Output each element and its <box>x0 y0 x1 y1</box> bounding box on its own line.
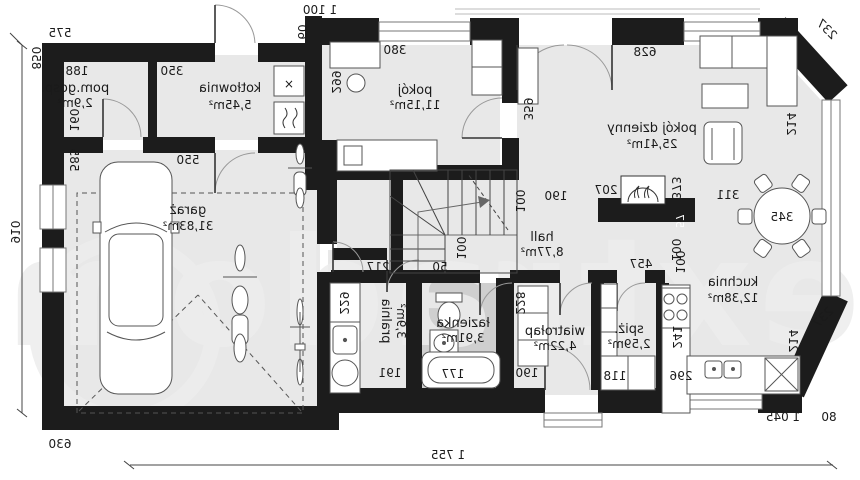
dim-wardrobe: 228 <box>513 292 527 315</box>
dim-tub: 177 <box>442 367 465 381</box>
svg-text:11,15m²: 11,15m² <box>389 98 440 112</box>
dim-total-height: 910 <box>8 221 22 244</box>
laundry-sink-icon <box>333 326 357 354</box>
porch-steps <box>544 413 602 427</box>
dim-living-w: 628 <box>634 45 657 59</box>
dim-bay-side-bottom: 214 <box>786 330 800 353</box>
floor-plan-drawing: extradom <box>0 0 860 480</box>
label-wiatrolap: wiatrołap 4,22m² <box>525 324 585 353</box>
kitchen-window <box>685 392 762 409</box>
svg-text:pokój dzienny: pokój dzienny <box>607 121 697 136</box>
dim-kitchen-w: 296 <box>670 369 693 383</box>
svg-text:wiatrołap: wiatrołap <box>525 324 585 339</box>
svg-text:2,59m²: 2,59m² <box>607 337 650 351</box>
dim-pomgosp-w: 188 <box>66 64 89 78</box>
dim-garage-width: 630 <box>49 437 72 451</box>
terrace-edge <box>455 9 760 14</box>
dim-left-top: 575 <box>49 26 72 40</box>
fridge-icon <box>765 358 798 391</box>
boiler-x-symbol: × <box>284 77 294 91</box>
dim-fireplace-d: 373 <box>669 177 683 200</box>
washing-machine-icon <box>332 360 358 386</box>
svg-text:pom.gosp.: pom.gosp. <box>41 81 109 96</box>
dim-pralnia-floor: 191 <box>379 366 402 380</box>
dim-table: 345 <box>771 210 794 224</box>
svg-text:spiż.: spiż. <box>614 322 644 337</box>
dim-spiz-w: 118 <box>604 369 627 383</box>
dim-pokoj-w: 380 <box>384 43 407 57</box>
dim-kitchen-off: 100 <box>673 251 687 274</box>
svg-text:łazienka: łazienka <box>436 316 490 331</box>
dim-kotlownia-w: 350 <box>161 64 184 78</box>
dim-bay-top: 237 <box>814 16 840 42</box>
svg-text:kotłownia: kotłownia <box>199 81 261 96</box>
dim-fireplace-wall: 57 <box>673 214 686 228</box>
dim-fireplace-w: 207 <box>595 183 618 197</box>
svg-text:hall: hall <box>530 230 553 245</box>
dim-stairs-d: 100 <box>513 190 527 213</box>
bed-icon <box>337 140 437 171</box>
dim-right-width: 1 045 <box>766 410 800 424</box>
dim-pokoj-h: 299 <box>329 71 343 94</box>
svg-text:garaż: garaż <box>170 203 207 218</box>
dim-garaz-h: 585 <box>67 149 81 172</box>
floor-plan-page: extradom <box>0 0 860 480</box>
dim-right-edge: 80 <box>821 410 836 424</box>
dim-annex-offset: 60 <box>295 24 309 39</box>
dim-garaz-w: 550 <box>177 153 200 167</box>
dim-living-h: 359 <box>521 98 535 121</box>
dim-kitchen-counter: 241 <box>670 326 684 349</box>
coffee-table-icon <box>702 84 748 108</box>
dim-pralnia-counter: 229 <box>337 292 351 315</box>
dim-table-clear: 311 <box>717 188 740 202</box>
bedroom-window <box>379 22 470 41</box>
svg-text:3,9m²: 3,9m² <box>394 303 408 339</box>
chair-icon <box>347 74 365 92</box>
mirrored-plan-wrapper: extradom <box>0 0 860 480</box>
svg-text:12,38m²: 12,38m² <box>707 291 758 305</box>
desk-icon <box>330 42 380 68</box>
dim-stairs-w: 190 <box>545 189 568 203</box>
dim-pralnia-top: 217 <box>367 260 390 274</box>
svg-text:25,41m²: 25,41m² <box>626 137 677 151</box>
dim-bay-side-top: 214 <box>784 113 798 136</box>
wardrobe-icon <box>472 40 502 95</box>
svg-text:31,83m²: 31,83m² <box>162 219 213 233</box>
dim-step: 50 <box>432 260 447 274</box>
dim-kitchen-top: 457 <box>630 257 653 271</box>
svg-text:pokój: pokój <box>398 83 433 98</box>
dim-landing: 100 <box>454 237 468 260</box>
heater-icon <box>274 102 304 134</box>
dim-top-width: 1 100 <box>303 3 337 17</box>
boiler-room-ext-door-arc <box>215 5 255 43</box>
svg-text:8,77m²: 8,77m² <box>520 245 563 259</box>
svg-text:2,9m²: 2,9m² <box>57 96 93 110</box>
svg-text:kuchnia: kuchnia <box>708 275 759 290</box>
svg-text:5,45m²: 5,45m² <box>208 98 251 112</box>
label-pralnia: pralnia 3,9m² <box>378 299 408 344</box>
dim-pomgosp-h: 160 <box>67 109 81 132</box>
svg-text:3,91m²: 3,91m² <box>441 331 484 345</box>
tv-cabinet-icon <box>518 48 538 104</box>
bay-window <box>822 100 840 296</box>
dim-wiatrolap-w: 190 <box>516 366 539 380</box>
label-lazienka: łazienka 3,91m² <box>436 316 490 345</box>
fireplace-icon <box>621 176 665 204</box>
garage-window-1 <box>40 185 66 229</box>
armchair-icon <box>704 122 742 164</box>
svg-text:pralnia: pralnia <box>378 299 393 344</box>
car-icon <box>93 162 179 394</box>
svg-text:4,22m²: 4,22m² <box>533 339 576 353</box>
dim-total-width: 1 755 <box>431 448 465 462</box>
dim-left-wall: 850 <box>29 47 43 70</box>
garage-window-2 <box>40 248 66 292</box>
